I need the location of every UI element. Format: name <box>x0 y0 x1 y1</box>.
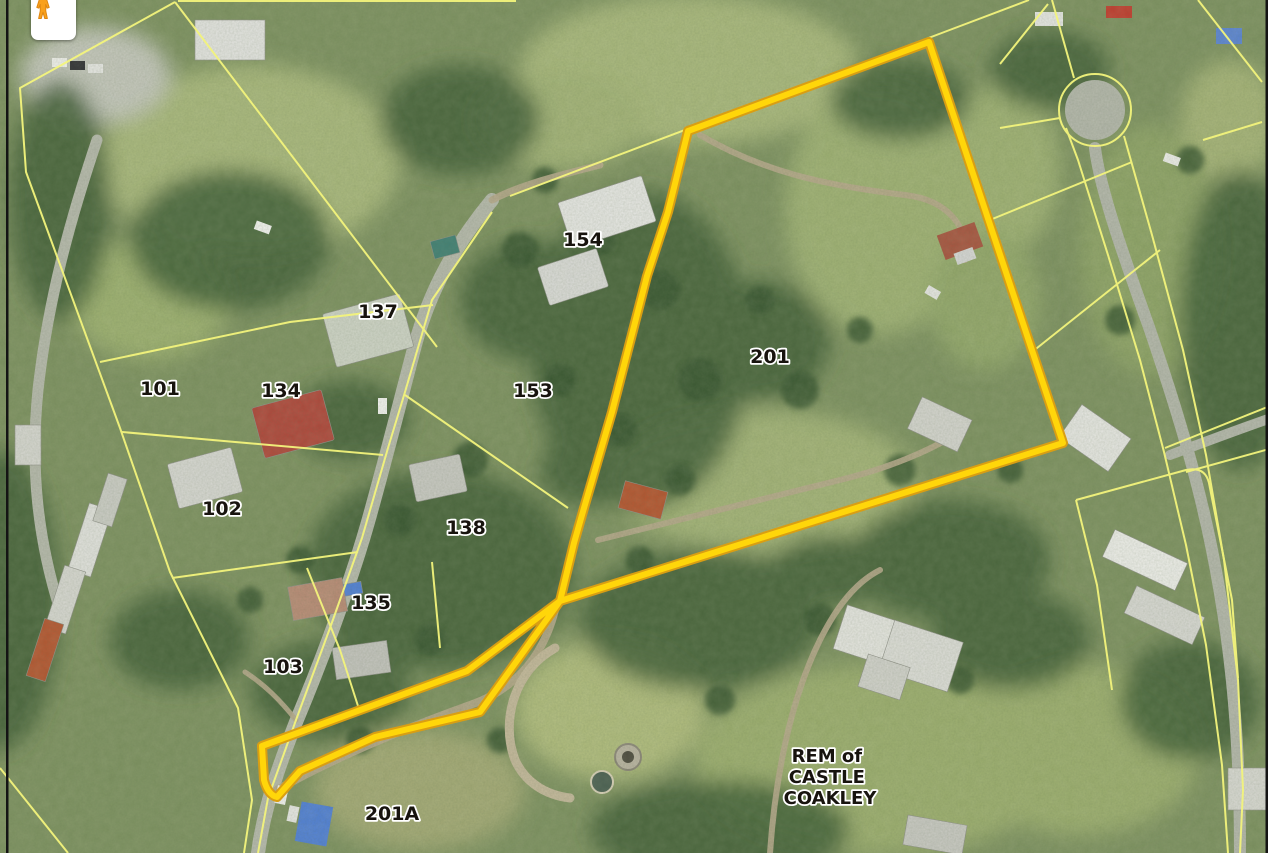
parcel-label-135: 135 <box>351 592 391 614</box>
parcel-label-134: 134 <box>261 380 301 402</box>
parcel-label-137: 137 <box>358 301 398 323</box>
area-label-castle-coakley: REM of CASTLE COAKLEY <box>784 746 878 809</box>
aerial-map: 154 137 101 134 153 201 102 138 135 103 … <box>0 0 1280 853</box>
pegman-button[interactable] <box>31 0 76 40</box>
parcel-label-154: 154 <box>563 229 603 251</box>
street-view-pegman-icon <box>31 0 55 20</box>
page-margin-right <box>1268 0 1280 853</box>
parcel-label-101: 101 <box>140 378 180 400</box>
map-border-left <box>6 0 9 853</box>
photo-mottle <box>0 0 1280 853</box>
parcel-label-102: 102 <box>202 498 242 520</box>
parcel-label-201A: 201A <box>365 803 420 825</box>
map-canvas[interactable]: 154 137 101 134 153 201 102 138 135 103 … <box>0 0 1280 853</box>
parcel-label-201: 201 <box>750 346 790 368</box>
parcel-label-153: 153 <box>513 380 553 402</box>
parcel-label-103: 103 <box>263 656 303 678</box>
map-border-right <box>1266 0 1269 853</box>
parcel-label-138: 138 <box>446 517 486 539</box>
